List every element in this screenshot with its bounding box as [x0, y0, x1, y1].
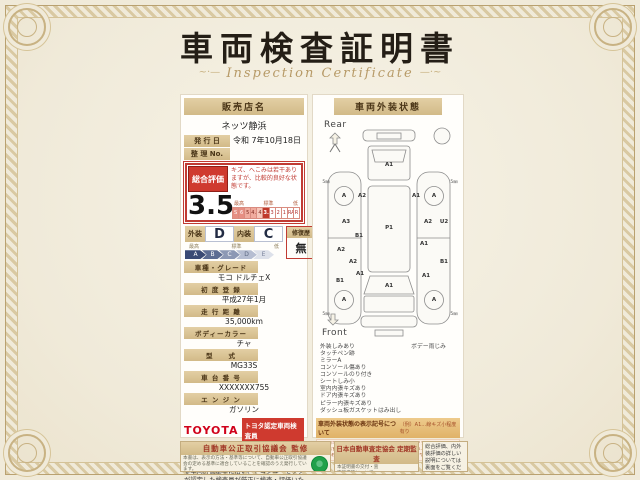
council-seal-icon	[311, 456, 328, 472]
field-chassis-no: 車 台 番 号 XXXXXXX755	[184, 371, 304, 392]
corner-flourish	[8, 434, 46, 472]
damage-marker: A2	[358, 193, 366, 199]
exterior-grade: D	[205, 226, 234, 242]
ref-no-label: 整 理 No.	[184, 148, 230, 160]
overall-rating-label: 総合評価	[188, 166, 228, 192]
defect-item: ボデー雨じみ	[411, 344, 446, 351]
grade-arrow: A	[185, 250, 206, 259]
defect-item: ダッシュ板ガスケットはみ出し	[320, 408, 401, 415]
repair-history-label: 修復歴	[287, 227, 315, 238]
page-title: 車両検査証明書	[0, 22, 640, 70]
field-mileage: 走 行 距 離 35,000km	[184, 305, 304, 326]
toyota-logo: TOYOTA	[184, 424, 239, 437]
field-body-color: ボディーカラー チャ	[184, 327, 304, 348]
field-value: ガソリン	[184, 405, 304, 414]
damage-marker: A1	[420, 241, 428, 247]
damage-marker: A3	[342, 219, 350, 225]
field-model-code: 型 式 MG33S	[184, 349, 304, 370]
page-subtitle: ~·— Inspection Certificate —·~	[0, 66, 640, 81]
tread-depth-label: 5㎜	[322, 179, 329, 185]
grade-scale-high: 最高	[189, 243, 199, 250]
damage-marker: A1	[385, 283, 393, 289]
scale-cell: R	[294, 207, 300, 219]
fair-trade-council-box: 自動車公正取引協議会 監修 本書は、表示の方法・基準等について、自動車公正取引協…	[180, 441, 331, 472]
grades-block: 外装 D 内装 C 最高 標準 低 A B C D E	[185, 226, 303, 259]
repair-history-value: 無	[287, 238, 315, 258]
field-label: ボディーカラー	[184, 327, 258, 339]
corner-flourish	[594, 434, 632, 472]
damage-marker: A1	[422, 273, 430, 279]
field-label: 車種・グレード	[184, 261, 258, 273]
scale-cell: S	[232, 207, 239, 219]
issue-date-label: 発 行 日	[184, 135, 230, 147]
ref-no-row: 整 理 No.	[184, 148, 304, 159]
damage-marker: A2	[337, 247, 345, 253]
field-model-grade: 車種・グレード モコ ドルチェX	[184, 261, 304, 282]
rear-label: Rear	[324, 120, 347, 130]
scale-label-low: 低	[293, 200, 298, 207]
scale-label-mid: 標準	[263, 200, 273, 207]
overall-rating-comment: キズ、へこみは若干ありますが、比較的良好な状態です。	[228, 166, 300, 192]
grade-scale-low: 低	[274, 243, 279, 250]
fair-trade-council-title: 自動車公正取引協議会 監修	[181, 442, 330, 455]
damage-marker: A2	[424, 219, 432, 225]
field-first-registration: 初 度 登 録 平成27年1月	[184, 283, 304, 304]
overall-scale: 最高 標準 低 S 6 5 4.5 4 3.5 3 2 1 RA	[232, 200, 300, 219]
issue-date-row: 発 行 日 令和 7年10月18日	[184, 135, 304, 146]
field-label: 型 式	[184, 349, 258, 361]
appraisal-association-box: 日本自動車査定協会 定期監査 本証明書の交付・査定基準等について、日本自動車査定…	[334, 441, 419, 472]
defect-item: ドア内張キズあり	[320, 393, 401, 400]
defect-list: 外装しみあり タッチペン跡 ミラーA コンソール傷あり コンソールのり付き シー…	[316, 344, 460, 415]
scale-label-high: 最高	[234, 200, 244, 207]
damage-marker: B1	[440, 259, 448, 265]
tread-depth-label: 5㎜	[450, 179, 457, 185]
tire-grade-marker: A	[342, 193, 346, 199]
grade-scale-arrows: A B C D E	[185, 250, 283, 259]
field-value: XXXXXXX755	[184, 383, 304, 392]
overall-rating-box: 総合評価 キズ、へこみは若干ありますが、比較的良好な状態です。 3.5 最高 標…	[185, 163, 303, 222]
field-label: 初 度 登 録	[184, 283, 258, 295]
toyota-block: TOYOTA トヨタ認定車両検査員	[184, 418, 304, 442]
rear-arrow-icon	[328, 132, 342, 146]
field-value: MG33S	[184, 361, 304, 370]
interior-grade-label: 内装	[234, 226, 254, 242]
exterior-grade-label: 外装	[185, 226, 205, 242]
field-label: 走 行 距 離	[184, 305, 258, 317]
field-label: 車 台 番 号	[184, 371, 258, 383]
damage-marker: A2	[349, 259, 357, 265]
dealer-name: ネッツ静浜	[184, 119, 304, 132]
tire-grade-marker: A	[342, 297, 346, 303]
damage-marker: A1	[412, 193, 420, 199]
defect-item: ピラー内張キズあり	[320, 401, 401, 408]
damage-marker: A1	[356, 271, 364, 277]
field-value: モコ ドルチェX	[184, 273, 304, 282]
defect-list-col2: ボデー雨じみ	[401, 344, 446, 415]
damage-marker: A1	[385, 162, 393, 168]
flourish-right: —·~	[420, 67, 442, 78]
exterior-condition-header: 車両外装状態	[334, 98, 442, 115]
damage-marker: U2	[440, 219, 448, 225]
field-engine: エ ン ジ ン ガソリン	[184, 393, 304, 414]
back-side-info-text: 総合評価、内外装評価の詳しい説明については裏面をご覧ください。	[423, 442, 467, 472]
tire-grade-marker: A	[432, 193, 436, 199]
fair-trade-council-body: 本書は、表示の方法・基準等について、自動車公正取引協議会の定める基準に適合してい…	[183, 456, 309, 472]
defect-item: 外装しみあり	[320, 344, 401, 351]
damage-marker: B1	[355, 233, 363, 239]
legend-example: （例）A1…線キズ小程度有り	[400, 421, 458, 435]
car-exterior-diagram: Rear Front A1 A A2 A1 A A3 B1 A2 U2 P1 A…	[316, 118, 460, 342]
dealer-header: 販売店名	[184, 98, 304, 115]
certificate-page: 車両検査証明書 ~·— Inspection Certificate —·~ 販…	[0, 0, 640, 480]
damage-marker: P1	[385, 225, 393, 231]
flourish-left: ~·—	[199, 67, 221, 78]
exterior-condition-panel: 車両外装状態	[312, 94, 464, 438]
field-value: チャ	[184, 339, 304, 348]
legend-title: 車両外装状態の表示記号について	[318, 419, 397, 437]
overall-score: 3.5	[188, 193, 232, 219]
tread-depth-label: 5㎜	[450, 311, 457, 317]
field-label: エ ン ジ ン	[184, 393, 258, 405]
vehicle-info-panel: 販売店名 ネッツ静浜 発 行 日 令和 7年10月18日 整 理 No. 総合評…	[180, 94, 308, 438]
field-value: 35,000km	[184, 317, 304, 326]
interior-grade: C	[254, 226, 283, 242]
issue-date-value: 令和 7年10月18日	[230, 135, 304, 146]
back-side-info-box: 総合評価、内外装評価の詳しい説明については裏面をご覧ください。	[422, 441, 468, 472]
appraisal-association-title: 日本自動車査定協会 定期監査	[335, 442, 418, 464]
defect-list-col1: 外装しみあり タッチペン跡 ミラーA コンソール傷あり コンソールのり付き シー…	[316, 344, 401, 415]
certified-inspector-badge: トヨタ認定車両検査員	[242, 418, 304, 442]
front-label: Front	[322, 328, 347, 338]
field-value: 平成27年1月	[184, 295, 304, 304]
legend-header: 車両外装状態の表示記号について （例）A1…線キズ小程度有り	[316, 418, 460, 438]
damage-marker: B1	[336, 278, 344, 284]
appraisal-association-body: 本証明書の交付・査定基準等について、日本自動車査定協会による監査を定期的に実施し…	[337, 465, 382, 472]
tread-depth-label: 5㎜	[322, 311, 329, 317]
tire-grade-marker: A	[432, 297, 436, 303]
grade-scale-mid: 標準	[231, 243, 241, 250]
